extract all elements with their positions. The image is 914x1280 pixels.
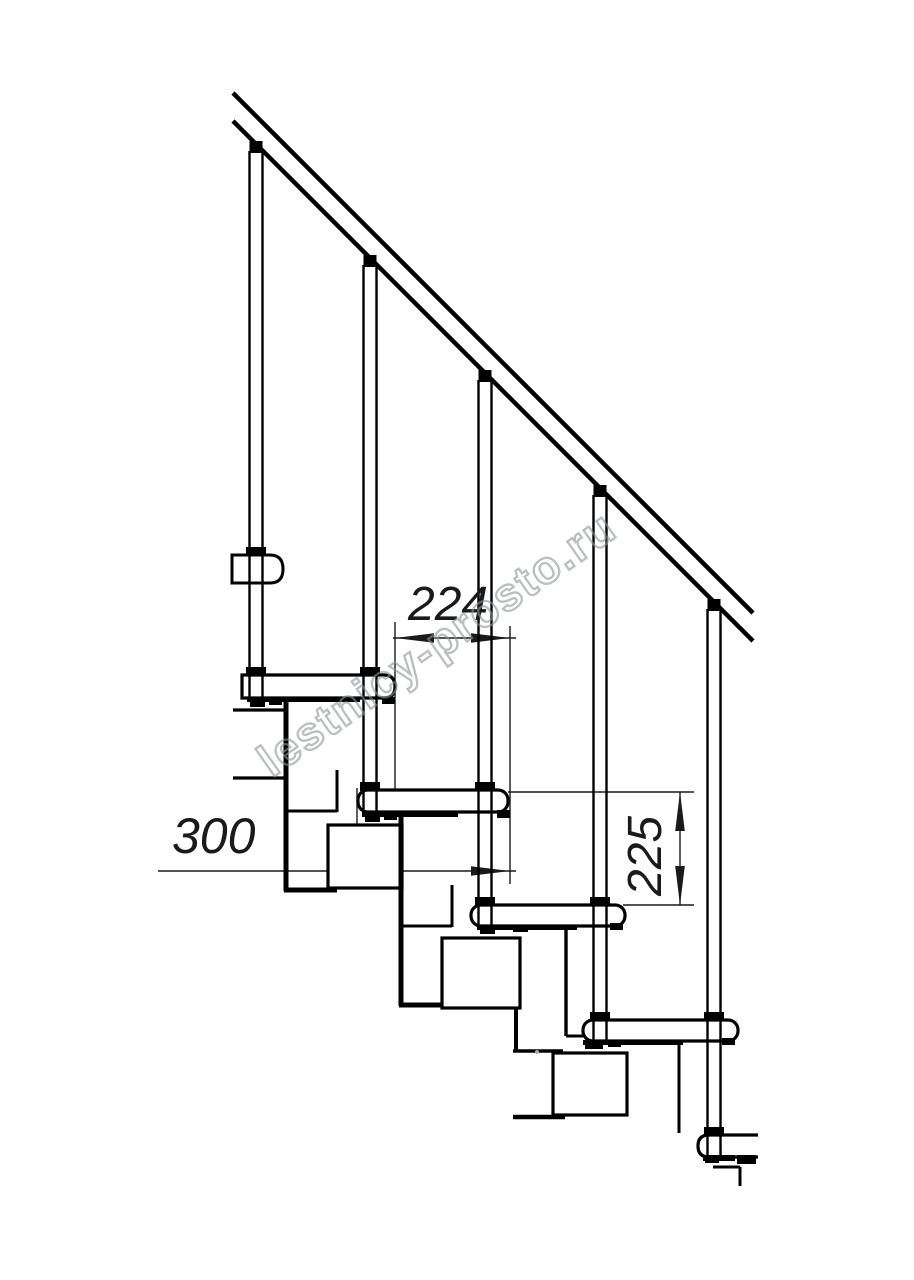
- dim-arrow: [675, 866, 685, 905]
- fastener-block: [722, 1038, 735, 1045]
- staircase-technical-drawing: 224 300 225 lestnicy-prosto.ru: [0, 0, 914, 1280]
- baluster-collar: [475, 782, 495, 791]
- baluster-4: [590, 485, 610, 1043]
- staircase-drawing-page: 224 300 225 lestnicy-prosto.ru: [0, 0, 914, 1280]
- baluster-1: [246, 141, 266, 698]
- tread-end-profile: [232, 555, 283, 583]
- baluster-collar: [475, 897, 495, 906]
- module-box: [328, 825, 402, 888]
- module-box: [553, 1053, 627, 1115]
- handrail-bottom-edge: [233, 121, 753, 641]
- dim-label-300: 300: [172, 808, 256, 864]
- fastener-foot: [250, 697, 265, 707]
- dim-label-225: 225: [619, 816, 672, 897]
- tread-2: [358, 790, 508, 812]
- fastener-block: [610, 923, 623, 930]
- baluster-3: [475, 370, 495, 928]
- print-speck: [535, 1050, 539, 1054]
- fastener-foot: [365, 812, 380, 822]
- fastener-foot: [705, 1155, 719, 1163]
- dim-arrow: [675, 792, 685, 831]
- fastener-foot: [269, 697, 282, 705]
- baluster-collar: [704, 1127, 724, 1136]
- handrail-top-edge: [233, 93, 753, 613]
- baluster-collar: [704, 1012, 724, 1021]
- baluster-collar: [590, 1012, 610, 1021]
- module-chain: [233, 700, 740, 1186]
- baluster-5: [704, 599, 724, 1155]
- baluster-collar: [246, 547, 266, 556]
- baluster-2: [360, 255, 380, 813]
- baluster-collar: [590, 897, 610, 906]
- fastener-foot: [608, 1040, 621, 1047]
- module-box: [442, 938, 520, 1008]
- fastener-block: [497, 810, 510, 818]
- baluster-collar: [246, 667, 266, 676]
- fastener-foot: [513, 925, 528, 932]
- tread-3: [471, 905, 625, 926]
- fastener-foot: [480, 925, 495, 934]
- fastener-foot: [384, 812, 397, 820]
- fastener-block: [737, 1155, 756, 1164]
- upper-flight-tread-end: [232, 555, 283, 583]
- handrail: [233, 93, 753, 641]
- watermark-text: lestnicy-prosto.ru: [248, 500, 626, 786]
- baluster-collar: [360, 782, 380, 791]
